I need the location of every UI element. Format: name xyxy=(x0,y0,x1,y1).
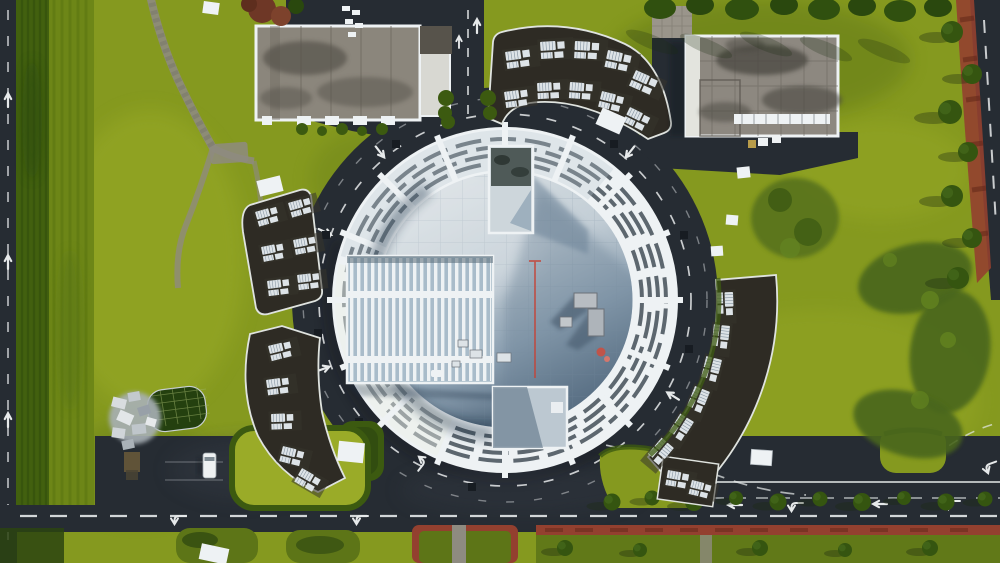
bush-patch-right-of-ring xyxy=(751,178,839,258)
brown-structure xyxy=(124,452,140,472)
yellow-equipment xyxy=(748,140,756,148)
left-annex xyxy=(347,256,505,400)
aerial-photo-canvas xyxy=(0,0,1000,563)
red-brick-medians xyxy=(412,525,1000,563)
left-road xyxy=(0,0,17,563)
skylight-box-bottom xyxy=(493,387,567,448)
hedge-windbreak-rows xyxy=(16,0,94,506)
top-right-building xyxy=(670,36,842,148)
canopy-row xyxy=(734,114,830,124)
white-canopy xyxy=(337,441,365,464)
autumn-tree xyxy=(271,6,291,26)
aerial-photo xyxy=(0,0,1000,563)
